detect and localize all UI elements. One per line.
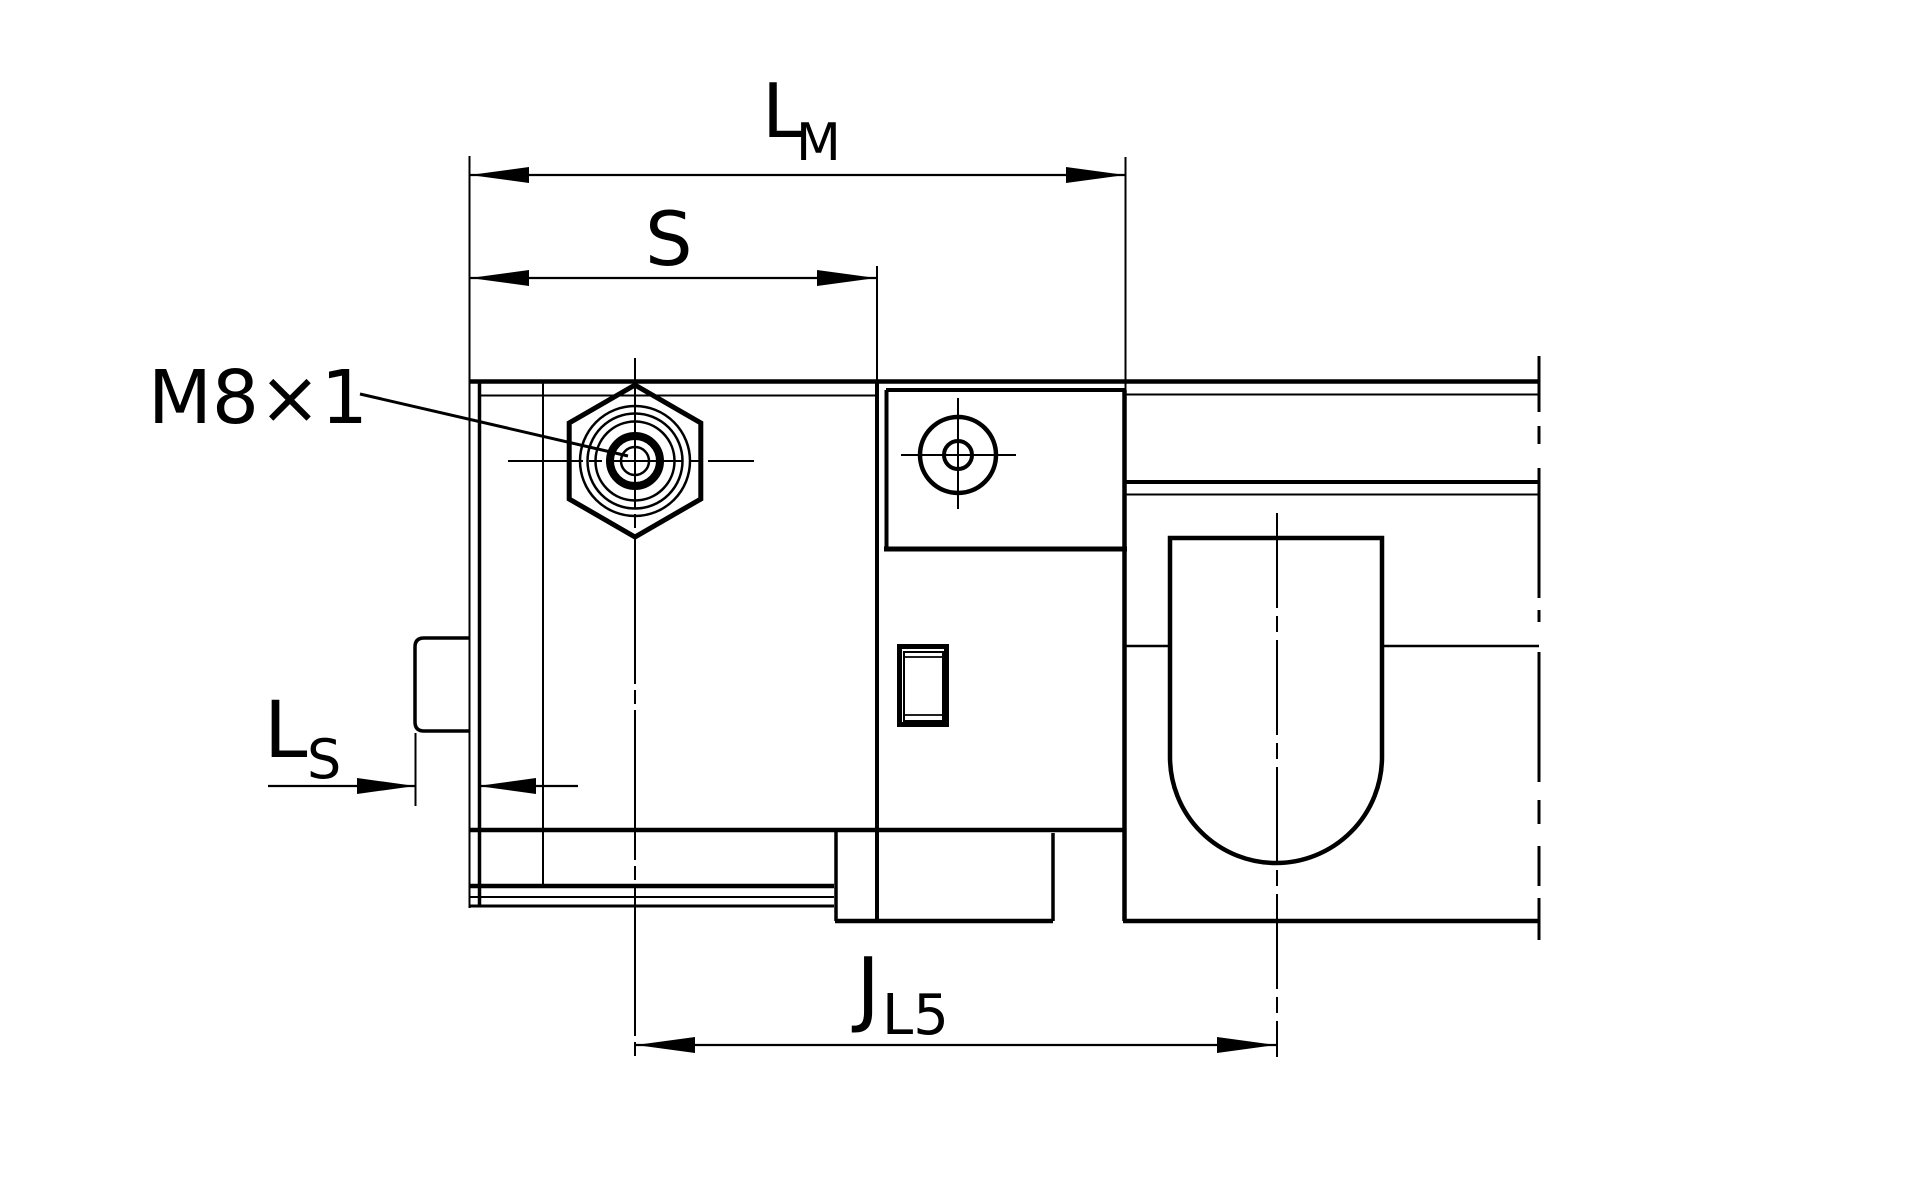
dim-label-s: S <box>645 195 693 283</box>
jl5-arrow-right <box>1217 1037 1276 1053</box>
technical-drawing: L M S M8×1 L S J L5 <box>0 0 1920 1200</box>
dim-label-jl5-sub: L5 <box>882 983 949 1048</box>
lm-arrow-right <box>1066 167 1125 183</box>
dimension-s: S <box>470 195 877 382</box>
sensor-slot <box>900 647 947 725</box>
dimension-ls: L S <box>264 686 578 806</box>
side-plug <box>415 638 470 731</box>
carriage-block <box>884 390 1127 921</box>
ls-arrow-left <box>357 778 415 794</box>
dimension-lm: L M <box>470 67 1126 390</box>
dim-label-ls: L <box>264 686 308 776</box>
s-arrow-right <box>817 270 876 286</box>
dim-label-lm-sub: M <box>796 113 841 173</box>
lm-arrow-left <box>470 167 529 183</box>
centerlines <box>508 358 1277 1057</box>
thread-size-label: M8×1 <box>148 355 368 441</box>
s-arrow-left <box>470 270 529 286</box>
dimension-jl5: J L5 <box>636 941 1276 1053</box>
slot-outer <box>900 647 947 725</box>
ls-arrow-right <box>478 778 536 794</box>
guide-rail <box>1124 482 1539 646</box>
dim-label-ls-sub: S <box>307 728 341 791</box>
jl5-arrow-left <box>636 1037 695 1053</box>
leader-line <box>360 394 628 456</box>
technical-drawing-canvas: L M S M8×1 L S J L5 <box>0 0 1920 1200</box>
dim-label-jl5: J <box>851 941 880 1036</box>
slot-inner <box>904 652 943 721</box>
